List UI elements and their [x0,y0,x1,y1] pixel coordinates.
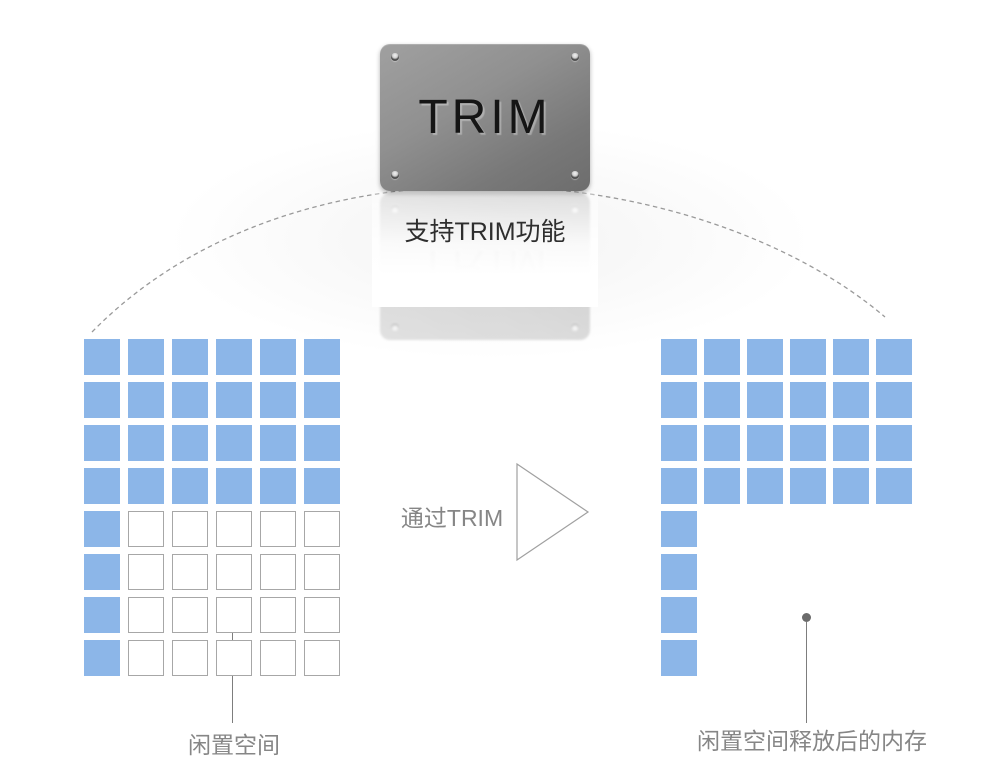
used-block [704,468,740,504]
used-block [128,339,164,375]
used-block [704,339,740,375]
free-block [128,511,164,547]
used-block [172,425,208,461]
used-block [128,468,164,504]
screw-icon [391,323,399,331]
used-block [216,425,252,461]
free-block [260,597,296,633]
screw-icon [571,323,579,331]
used-block [84,382,120,418]
used-block [260,382,296,418]
free-block [260,640,296,676]
free-block [128,554,164,590]
used-block [661,468,697,504]
used-block [661,339,697,375]
free-block [260,511,296,547]
screw-icon [391,171,399,179]
used-block [747,468,783,504]
used-block [260,339,296,375]
used-block [704,382,740,418]
used-block [84,468,120,504]
used-block [216,339,252,375]
free-block [216,511,252,547]
used-block [876,425,912,461]
caption: 支持TRIM功能 [330,212,640,248]
free-block [304,597,340,633]
screw-icon [391,53,399,61]
used-block [661,640,697,676]
used-block [790,339,826,375]
free-block [172,640,208,676]
used-block [790,468,826,504]
used-block [790,425,826,461]
reflection-fade [372,192,598,307]
used-block [661,382,697,418]
free-block [172,511,208,547]
used-block [304,468,340,504]
free-block [216,640,252,676]
used-block [128,382,164,418]
free-block [216,597,252,633]
used-block [84,597,120,633]
free-block [172,597,208,633]
used-block [833,339,869,375]
used-block [661,511,697,547]
used-block [661,425,697,461]
used-block [172,468,208,504]
used-block [304,339,340,375]
free-block [128,640,164,676]
used-block [84,425,120,461]
used-block [876,468,912,504]
used-block [833,425,869,461]
screw-icon [571,53,579,61]
used-block [84,339,120,375]
used-block [172,382,208,418]
used-block [704,425,740,461]
used-block [661,554,697,590]
used-block [128,425,164,461]
badge-title: TRIM [418,90,551,145]
memory-grid-after [661,339,912,676]
used-block [84,640,120,676]
trim-badge: TRIM [380,44,590,191]
used-block [747,425,783,461]
used-block [216,382,252,418]
free-block [304,554,340,590]
trim-feature-diagram: TRIM TRIM 支持TRIM功能 通过TRIM 闲置空间 闲置空间释放后的内… [0,0,1001,775]
used-block [84,511,120,547]
used-block [876,339,912,375]
free-block [172,554,208,590]
screw-icon [571,171,579,179]
used-block [833,382,869,418]
used-block [790,382,826,418]
free-block [260,554,296,590]
free-block [128,597,164,633]
free-block [216,554,252,590]
used-block [876,382,912,418]
used-block [747,339,783,375]
used-block [304,382,340,418]
used-block [260,468,296,504]
memory-grid-before [84,339,340,676]
used-block [84,554,120,590]
used-block [260,425,296,461]
free-block [304,640,340,676]
used-block [833,468,869,504]
used-block [304,425,340,461]
free-block [304,511,340,547]
used-block [747,382,783,418]
used-block [172,339,208,375]
used-block [661,597,697,633]
used-block [216,468,252,504]
